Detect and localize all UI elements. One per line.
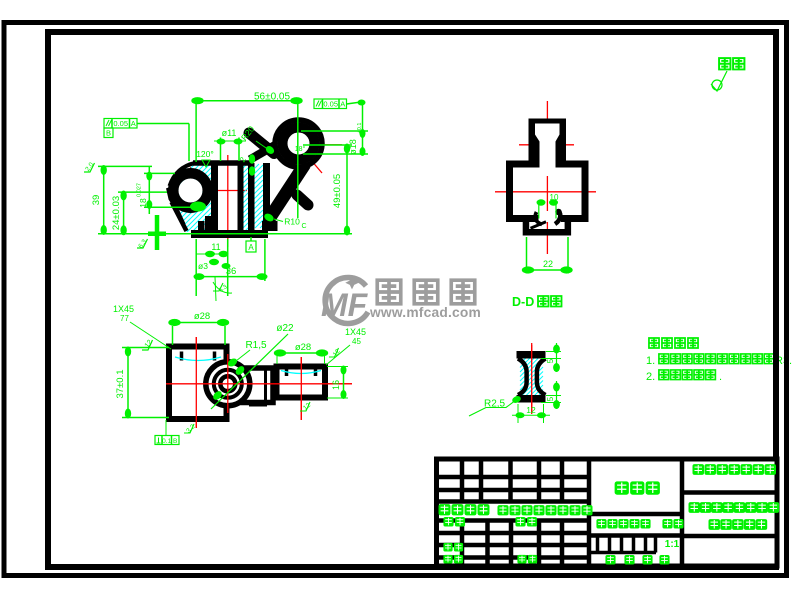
svg-text:.: . [719, 371, 722, 383]
svg-text:0.05: 0.05 [113, 119, 128, 128]
svg-text:24±0.03: 24±0.03 [111, 196, 122, 230]
svg-text:12: 12 [526, 405, 536, 415]
svg-text:R10: R10 [284, 217, 300, 227]
svg-text:ø28: ø28 [194, 311, 210, 322]
svg-text:D-D: D-D [512, 295, 534, 309]
svg-text:77: 77 [120, 314, 129, 323]
svg-text:39: 39 [91, 195, 102, 206]
svg-text:1X45: 1X45 [345, 327, 366, 337]
svg-text:ø28: ø28 [295, 342, 311, 353]
svg-text:1:1: 1:1 [665, 539, 680, 550]
svg-text:ø3: ø3 [198, 261, 208, 271]
svg-text:A: A [340, 100, 345, 109]
svg-text:16: 16 [331, 380, 341, 390]
svg-text:B: B [106, 129, 111, 138]
svg-text:5: 5 [546, 396, 555, 401]
svg-text:R1,5: R1,5 [245, 340, 267, 351]
svg-text:1.: 1. [646, 355, 655, 367]
svg-text:18°: 18° [295, 145, 306, 153]
svg-text:B: B [173, 438, 177, 445]
svg-text:1X45: 1X45 [113, 304, 134, 314]
svg-text:C: C [301, 223, 306, 230]
svg-text:ø11: ø11 [222, 128, 237, 138]
svg-text:ø22: ø22 [276, 323, 294, 334]
svg-text:A: A [248, 243, 254, 252]
svg-text:0.05: 0.05 [323, 100, 338, 109]
svg-text:49±0.05: 49±0.05 [332, 174, 343, 208]
svg-text:A: A [131, 119, 136, 128]
svg-text:120°: 120° [196, 149, 214, 159]
svg-text:36: 36 [226, 266, 237, 277]
svg-text:22: 22 [543, 259, 553, 269]
svg-text:18: 18 [138, 198, 148, 208]
svg-text:5: 5 [546, 358, 555, 363]
svg-text:11: 11 [211, 242, 220, 252]
svg-text:37±0.1: 37±0.1 [115, 370, 126, 399]
svg-text:45: 45 [352, 337, 361, 346]
svg-text:www.mfcad.com: www.mfcad.com [369, 305, 481, 320]
svg-text:2.: 2. [646, 371, 655, 383]
svg-text:0.1: 0.1 [162, 438, 171, 445]
svg-text:0.027: 0.027 [137, 183, 143, 197]
svg-text:+0.1: +0.1 [357, 123, 363, 134]
svg-text:MF: MF [321, 287, 369, 323]
svg-text:56±0.05: 56±0.05 [254, 92, 291, 103]
